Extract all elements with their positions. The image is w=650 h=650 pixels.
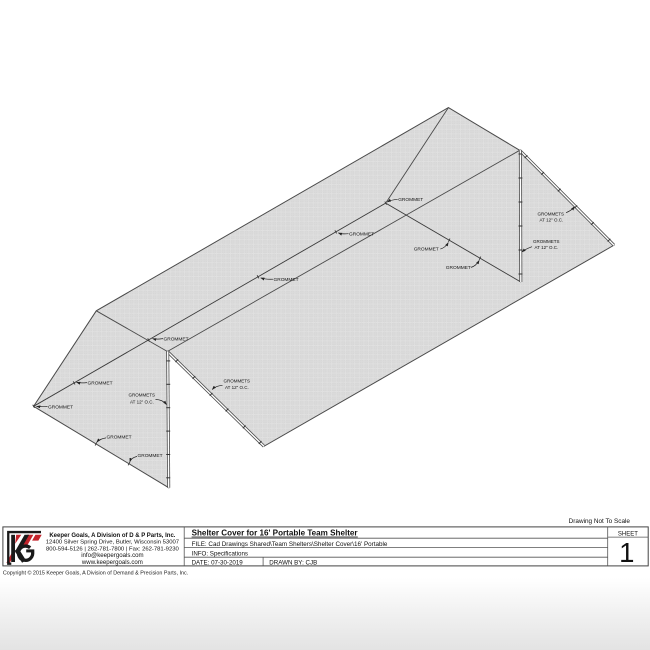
svg-text:GROMMET: GROMMET [48,404,73,410]
svg-text:GROMMET: GROMMET [138,453,163,459]
svg-text:GROMMET: GROMMET [274,277,299,283]
svg-text:Copyright © 2015 Keeper Goals,: Copyright © 2015 Keeper Goals, A Divisio… [3,570,188,577]
svg-text:Drawing Not To Scale: Drawing Not To Scale [569,518,631,525]
svg-text:DRAWN BY: CJB: DRAWN BY: CJB [269,560,317,567]
svg-text:GROMMET: GROMMET [414,247,439,253]
svg-text:GROMMETS: GROMMETS [129,393,156,398]
svg-text:GROMMET: GROMMET [349,231,374,237]
svg-text:GROMMET: GROMMET [398,197,423,203]
svg-text:www.keepergoals.com: www.keepergoals.com [81,559,143,566]
svg-text:12400 Silver Spring Drive, But: 12400 Silver Spring Drive, Butler, Wisco… [46,539,179,545]
svg-text:GROMMETS: GROMMETS [224,378,251,383]
svg-text:GROMMET: GROMMET [164,336,189,342]
svg-text:DATE: 07-30-2019: DATE: 07-30-2019 [192,560,244,567]
svg-text:GROMMETS: GROMMETS [538,211,565,216]
svg-text:GROMMET: GROMMET [107,434,132,440]
svg-text:1: 1 [619,537,634,568]
svg-text:AT 12" O.C.: AT 12" O.C. [225,385,249,390]
svg-text:INFO: Specifications: INFO: Specifications [192,551,248,558]
svg-text:GROMMET: GROMMET [446,265,471,271]
svg-text:GROMMET: GROMMET [88,380,113,386]
svg-text:Shelter Cover for 16' Portable: Shelter Cover for 16' Portable Team Shel… [192,528,359,537]
svg-text:FILE: Cad Drawings Shared\Team: FILE: Cad Drawings Shared\Team Shelters\… [192,541,388,548]
svg-text:Keeper Goals, A Division of D: Keeper Goals, A Division of D & P Parts,… [49,533,175,539]
svg-text:AT 12" O.C.: AT 12" O.C. [130,400,154,405]
svg-text:AT 12" O.C.: AT 12" O.C. [535,245,559,250]
svg-text:AT 12" O.C.: AT 12" O.C. [540,217,564,222]
svg-text:GROMMETS: GROMMETS [533,239,560,244]
